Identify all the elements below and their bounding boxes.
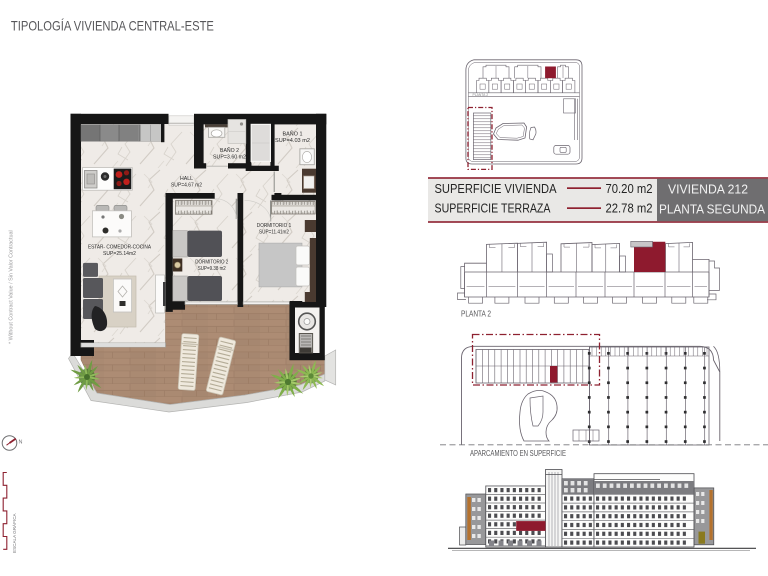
- svg-text:SUP=25.14m2: SUP=25.14m2: [103, 251, 136, 257]
- svg-text:SUP=4.67 m2: SUP=4.67 m2: [171, 183, 202, 189]
- svg-text:VIVIENDA 212: VIVIENDA 212: [668, 182, 748, 197]
- svg-text:PLANTA 2: PLANTA 2: [473, 93, 489, 97]
- svg-text:BAÑO 2: BAÑO 2: [220, 147, 239, 154]
- svg-text:APARCAMIENTO EN SUPERFICIE: APARCAMIENTO EN SUPERFICIE: [470, 449, 566, 458]
- svg-text:HALL: HALL: [180, 176, 193, 182]
- svg-text:PLANTA 2: PLANTA 2: [461, 310, 491, 319]
- svg-text:SUP=3.60 m2: SUP=3.60 m2: [213, 155, 246, 161]
- svg-text:* Without Contract Value / Sin: * Without Contract Value / Sin Valor Con…: [9, 230, 15, 344]
- svg-text:SUP=11.41m2: SUP=11.41m2: [259, 230, 289, 236]
- svg-text:SUPERFICIE VIVIENDA: SUPERFICIE VIVIENDA: [435, 181, 557, 196]
- svg-text:ESTAR- COMEDOR-COCINA: ESTAR- COMEDOR-COCINA: [88, 244, 151, 250]
- svg-text:N: N: [19, 440, 23, 446]
- svg-text:DORMITORIO 2: DORMITORIO 2: [195, 259, 228, 265]
- svg-text:PLANTA SEGUNDA: PLANTA SEGUNDA: [659, 201, 765, 216]
- svg-text:DORMITORIO 1: DORMITORIO 1: [257, 223, 291, 229]
- svg-text:BAÑO 1: BAÑO 1: [283, 130, 303, 137]
- svg-text:SUP=4.03 m2: SUP=4.03 m2: [275, 138, 310, 144]
- svg-text:22.78 m2: 22.78 m2: [606, 201, 653, 216]
- svg-text:70.20 m2: 70.20 m2: [606, 181, 653, 196]
- svg-text:ESCALA GRÁFICA: ESCALA GRÁFICA: [11, 512, 17, 553]
- svg-text:SUP=9.38 m2: SUP=9.38 m2: [198, 266, 226, 272]
- svg-text:SUPERFICIE TERRAZA: SUPERFICIE TERRAZA: [435, 201, 551, 216]
